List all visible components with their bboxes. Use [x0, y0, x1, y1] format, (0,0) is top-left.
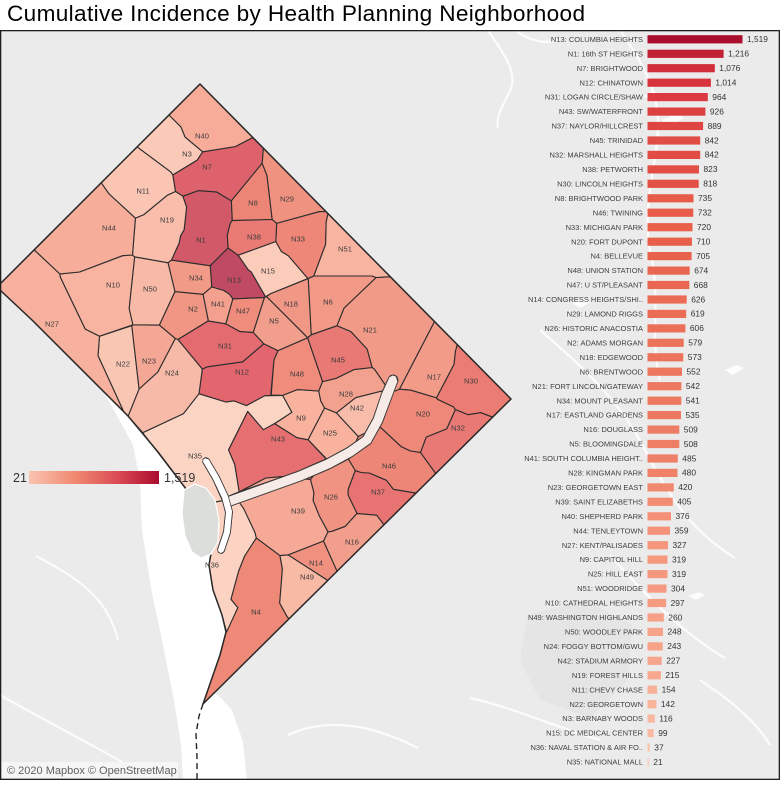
svg-text:N32: N32 [451, 424, 465, 433]
svg-text:© 2020 Mapbox © OpenStreetMap: © 2020 Mapbox © OpenStreetMap [7, 765, 177, 777]
svg-text:1,076: 1,076 [719, 63, 740, 73]
svg-text:705: 705 [696, 251, 710, 261]
svg-text:N31: N31 [218, 342, 232, 351]
svg-text:508: 508 [684, 439, 698, 449]
svg-text:626: 626 [691, 294, 705, 304]
svg-text:N44: TENLEYTOWN: N44: TENLEYTOWN [573, 526, 643, 535]
svg-text:N51: WOODRIDGE: N51: WOODRIDGE [577, 584, 643, 593]
svg-text:N21: FORT LINCOLN/GATEWAY: N21: FORT LINCOLN/GATEWAY [532, 382, 643, 391]
svg-text:N21: N21 [363, 326, 377, 335]
svg-text:N14: CONGRESS HEIGHTS/SHI..: N14: CONGRESS HEIGHTS/SHI.. [528, 295, 643, 304]
svg-text:N11: CHEVY CHASE: N11: CHEVY CHASE [572, 685, 643, 694]
svg-text:N30: LINCOLN HEIGHTS: N30: LINCOLN HEIGHTS [557, 179, 643, 188]
svg-text:215: 215 [665, 670, 679, 680]
svg-text:N17: N17 [427, 373, 441, 382]
svg-text:N22: GEORGETOWN: N22: GEORGETOWN [569, 700, 643, 709]
svg-text:668: 668 [694, 280, 708, 290]
svg-text:N20: FORT DUPONT: N20: FORT DUPONT [571, 237, 643, 246]
svg-text:227: 227 [666, 656, 680, 666]
svg-text:480: 480 [682, 468, 696, 478]
svg-text:541: 541 [686, 396, 700, 406]
svg-text:N6: N6 [323, 298, 333, 307]
svg-text:N45: N45 [331, 356, 345, 365]
svg-text:N4: BELLEVUE: N4: BELLEVUE [590, 252, 643, 261]
svg-text:N7: N7 [202, 163, 212, 172]
svg-text:N49: WASHINGTON HIGHLANDS: N49: WASHINGTON HIGHLANDS [528, 613, 643, 622]
svg-text:N15: DC MEDICAL CENTER: N15: DC MEDICAL CENTER [546, 729, 643, 738]
svg-text:N3: N3 [182, 150, 192, 159]
svg-text:N39: SAINT ELIZABETHS: N39: SAINT ELIZABETHS [555, 497, 643, 506]
svg-text:1,216: 1,216 [728, 49, 749, 59]
svg-text:N9: N9 [296, 414, 306, 423]
svg-text:842: 842 [705, 150, 719, 160]
svg-text:1,519: 1,519 [164, 471, 195, 485]
svg-text:N45: TRINIDAD: N45: TRINIDAD [590, 136, 644, 145]
svg-text:319: 319 [672, 554, 686, 564]
svg-text:N14: N14 [309, 559, 323, 568]
svg-text:579: 579 [688, 338, 702, 348]
svg-text:N37: N37 [371, 488, 385, 497]
svg-text:1,519: 1,519 [747, 34, 768, 44]
svg-text:N30: N30 [464, 377, 478, 386]
svg-text:710: 710 [696, 237, 710, 247]
svg-text:N3: BARNABY WOODS: N3: BARNABY WOODS [562, 714, 643, 723]
svg-text:N28: N28 [339, 390, 353, 399]
svg-text:99: 99 [658, 728, 668, 738]
svg-text:N2: ADAMS MORGAN: N2: ADAMS MORGAN [567, 338, 643, 347]
svg-text:1,014: 1,014 [715, 78, 736, 88]
svg-text:552: 552 [687, 367, 701, 377]
svg-text:N48: UNION STATION: N48: UNION STATION [567, 266, 643, 275]
svg-text:N43: SW/WATERFRONT: N43: SW/WATERFRONT [559, 107, 644, 116]
svg-text:N47: N47 [236, 307, 250, 316]
svg-text:N31: LOGAN CIRCLE/SHAW: N31: LOGAN CIRCLE/SHAW [545, 93, 644, 102]
svg-text:116: 116 [659, 713, 673, 723]
svg-text:926: 926 [710, 106, 724, 116]
svg-text:964: 964 [712, 92, 726, 102]
svg-text:N25: HILL EAST: N25: HILL EAST [588, 570, 644, 579]
svg-text:N12: N12 [235, 368, 249, 377]
svg-text:N5: BLOOMINGDALE: N5: BLOOMINGDALE [569, 440, 643, 449]
svg-text:N13: N13 [227, 276, 241, 285]
svg-text:N1: 16th ST HEIGHTS: N1: 16th ST HEIGHTS [568, 49, 643, 58]
svg-text:37: 37 [654, 742, 664, 752]
svg-text:N48: N48 [290, 370, 304, 379]
svg-text:142: 142 [661, 699, 675, 709]
svg-text:N10: N10 [106, 281, 120, 290]
svg-text:N46: N46 [382, 462, 396, 471]
svg-text:N34: N34 [189, 274, 203, 283]
svg-text:N8: BRIGHTWOOD PARK: N8: BRIGHTWOOD PARK [555, 194, 643, 203]
svg-text:N50: WOODLEY PARK: N50: WOODLEY PARK [565, 628, 643, 637]
svg-text:N16: N16 [345, 538, 359, 547]
svg-text:N27: N27 [45, 320, 59, 329]
svg-text:N50: N50 [143, 285, 157, 294]
svg-text:N47: U ST/PLEASANT: N47: U ST/PLEASANT [567, 281, 644, 290]
svg-text:420: 420 [678, 482, 692, 492]
svg-text:N13: COLUMBIA HEIGHTS: N13: COLUMBIA HEIGHTS [551, 35, 643, 44]
svg-text:N16: DOUGLASS: N16: DOUGLASS [583, 425, 643, 434]
svg-text:N39: N39 [291, 507, 305, 516]
svg-text:359: 359 [675, 526, 689, 536]
svg-text:N23: GEORGETOWN EAST: N23: GEORGETOWN EAST [548, 483, 644, 492]
svg-text:N23: N23 [142, 357, 156, 366]
svg-text:573: 573 [688, 352, 702, 362]
svg-text:N29: LAMOND RIGGS: N29: LAMOND RIGGS [567, 310, 643, 319]
svg-text:N41: SOUTH COLUMBIA HEIGHT..: N41: SOUTH COLUMBIA HEIGHT.. [524, 454, 643, 463]
svg-text:N40: SHEPHERD PARK: N40: SHEPHERD PARK [561, 512, 643, 521]
svg-text:319: 319 [672, 569, 686, 579]
svg-text:542: 542 [686, 381, 700, 391]
svg-text:N19: FOREST HILLS: N19: FOREST HILLS [572, 671, 643, 680]
svg-text:154: 154 [662, 685, 676, 695]
svg-text:376: 376 [676, 511, 690, 521]
svg-text:327: 327 [673, 540, 687, 550]
svg-text:N19: N19 [160, 216, 174, 225]
svg-text:N9: CAPITOL HILL: N9: CAPITOL HILL [580, 555, 643, 564]
svg-text:N33: MICHIGAN PARK: N33: MICHIGAN PARK [566, 223, 643, 232]
svg-text:N20: N20 [416, 410, 430, 419]
svg-text:N4: N4 [251, 608, 261, 617]
svg-text:N32: MARSHALL HEIGHTS: N32: MARSHALL HEIGHTS [550, 151, 644, 160]
svg-text:N42: STADIUM ARMORY: N42: STADIUM ARMORY [557, 656, 643, 665]
svg-text:N29: N29 [280, 195, 294, 204]
svg-text:818: 818 [703, 179, 717, 189]
svg-text:735: 735 [698, 193, 712, 203]
svg-text:N35: NATIONAL MALL: N35: NATIONAL MALL [567, 758, 643, 767]
svg-text:N5: N5 [269, 317, 279, 326]
svg-text:N42: N42 [350, 404, 364, 413]
svg-text:606: 606 [690, 323, 704, 333]
svg-text:N27: KENT/PALISADES: N27: KENT/PALISADES [562, 541, 643, 550]
svg-text:N49: N49 [300, 573, 314, 582]
svg-text:N22: N22 [116, 360, 130, 369]
svg-text:N40: N40 [195, 132, 209, 141]
svg-text:N51: N51 [338, 245, 352, 254]
svg-text:N44: N44 [102, 224, 116, 233]
svg-text:21: 21 [653, 757, 663, 767]
svg-text:N25: N25 [323, 429, 337, 438]
svg-text:823: 823 [704, 164, 718, 174]
svg-text:N8: N8 [248, 199, 258, 208]
svg-text:N26: N26 [324, 493, 338, 502]
svg-text:N15: N15 [261, 267, 275, 276]
svg-text:297: 297 [671, 598, 685, 608]
svg-text:732: 732 [698, 208, 712, 218]
svg-text:509: 509 [684, 424, 698, 434]
svg-text:N10: CATHEDRAL HEIGHTS: N10: CATHEDRAL HEIGHTS [545, 599, 643, 608]
svg-text:889: 889 [708, 121, 722, 131]
svg-text:N6: BRENTWOOD: N6: BRENTWOOD [580, 367, 644, 376]
svg-text:720: 720 [697, 222, 711, 232]
svg-text:N12: CHINATOWN: N12: CHINATOWN [580, 78, 643, 87]
svg-text:N33: N33 [291, 235, 305, 244]
svg-text:N35: N35 [188, 452, 202, 461]
svg-text:N26: HISTORIC ANACOSTIA: N26: HISTORIC ANACOSTIA [544, 324, 643, 333]
svg-text:842: 842 [705, 135, 719, 145]
svg-text:674: 674 [694, 265, 708, 275]
svg-text:N2: N2 [188, 305, 198, 314]
svg-text:405: 405 [677, 497, 691, 507]
svg-text:N18: N18 [284, 300, 298, 309]
svg-text:N24: N24 [165, 369, 179, 378]
svg-text:535: 535 [686, 410, 700, 420]
svg-text:N18: EDGEWOOD: N18: EDGEWOOD [580, 353, 644, 362]
svg-text:N36: N36 [205, 561, 219, 570]
svg-text:260: 260 [668, 612, 682, 622]
svg-text:N43: N43 [271, 435, 285, 444]
svg-text:N38: N38 [247, 233, 261, 242]
svg-text:304: 304 [671, 583, 685, 593]
svg-text:N7: BRIGHTWOOD: N7: BRIGHTWOOD [577, 64, 644, 73]
svg-text:N41: N41 [211, 300, 225, 309]
svg-text:N38: PETWORTH: N38: PETWORTH [582, 165, 643, 174]
svg-text:243: 243 [667, 641, 681, 651]
svg-text:N1: N1 [196, 236, 206, 245]
svg-text:485: 485 [682, 453, 696, 463]
svg-text:21: 21 [13, 471, 27, 485]
svg-text:N34: MOUNT PLEASANT: N34: MOUNT PLEASANT [556, 396, 643, 405]
svg-text:N37: NAYLOR/HILLCREST: N37: NAYLOR/HILLCREST [551, 122, 643, 131]
svg-text:N36: NAVAL STATION & AIR FO..: N36: NAVAL STATION & AIR FO.. [530, 743, 643, 752]
svg-text:N28: KINGMAN PARK: N28: KINGMAN PARK [568, 469, 643, 478]
svg-text:N24: FOGGY BOTTOM/GWU: N24: FOGGY BOTTOM/GWU [544, 642, 643, 651]
svg-text:248: 248 [668, 627, 682, 637]
svg-text:619: 619 [691, 309, 705, 319]
svg-text:N46: TWINING: N46: TWINING [593, 208, 643, 217]
svg-text:N11: N11 [136, 187, 149, 196]
svg-text:N17: EASTLAND GARDENS: N17: EASTLAND GARDENS [546, 411, 643, 420]
